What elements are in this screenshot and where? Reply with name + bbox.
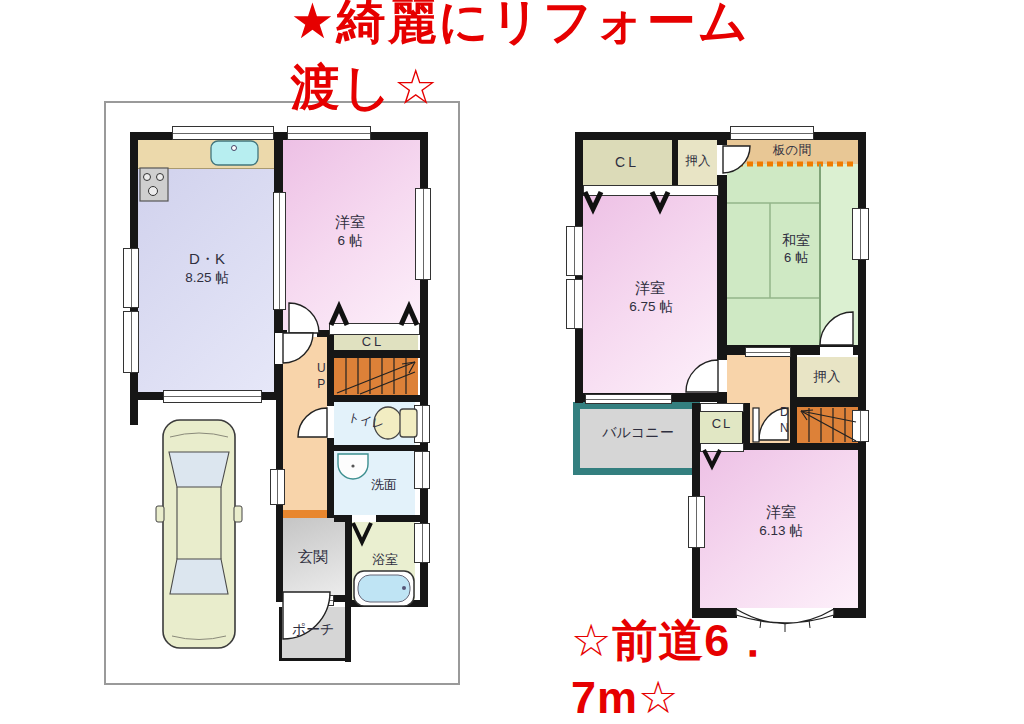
door-opening: [717, 360, 727, 392]
front-road-note: ☆前道6．7m☆: [571, 611, 873, 724]
window-symbol: [852, 410, 869, 442]
page-title: ★綺麗にリフォーム渡し☆: [291, 0, 780, 121]
room-label-closet-top: CL: [615, 155, 639, 170]
window-symbol: [270, 469, 285, 505]
window-symbol: [566, 226, 583, 276]
stairs-up-floor: [334, 357, 418, 395]
wall: [575, 132, 866, 140]
door-opening: [287, 330, 317, 337]
wall: [274, 140, 283, 194]
window-symbol: [123, 248, 139, 308]
window-symbol: [414, 523, 430, 563]
wall: [345, 600, 428, 607]
closet-front-bar: [700, 443, 744, 452]
window-symbol: [287, 126, 371, 140]
wall: [692, 403, 700, 449]
stairs-dn-floor: [797, 407, 858, 443]
door-opening: [717, 145, 727, 175]
window-symbol: [566, 279, 583, 329]
window-symbol: [123, 311, 139, 373]
room-label-bathroom: 浴室: [372, 553, 398, 567]
window-symbol: [415, 188, 431, 280]
room-size-western613: 6.13 帖: [759, 524, 803, 538]
window-symbol: [414, 405, 430, 443]
wall: [279, 607, 282, 661]
room-label-washroom: 洗面: [371, 478, 397, 492]
room-label-itanoma: 板の間: [773, 144, 811, 157]
room-label-western6: 洋室: [335, 214, 365, 230]
closet-front-bar: [583, 185, 719, 196]
room-size-western6: 6 帖: [338, 234, 363, 248]
stairs-up-label: UP: [315, 361, 328, 393]
window-symbol: [852, 208, 869, 260]
wall: [345, 607, 351, 662]
wall: [345, 518, 352, 607]
door-opening: [820, 347, 853, 355]
room-label-closet-small: CL: [712, 417, 733, 431]
room-label-western675: 洋室: [635, 280, 665, 296]
room-label-closet-1f: CL: [362, 335, 385, 349]
wall: [279, 658, 349, 661]
wall: [327, 395, 428, 402]
room-label-oshiire-top: 押入: [686, 155, 711, 168]
wall: [130, 392, 138, 425]
room-label-balcony: バルコニー: [602, 425, 673, 440]
door-opening: [275, 333, 283, 364]
wall: [672, 140, 678, 186]
wall: [327, 350, 428, 358]
window-symbol: [286, 595, 334, 606]
window-symbol: [688, 496, 705, 548]
window-symbol: [163, 390, 262, 403]
closet-front-bar: [700, 403, 744, 412]
room-label-dk: D・K: [189, 251, 225, 267]
window-symbol: [585, 394, 672, 404]
window-symbol: [414, 451, 430, 489]
door-opening: [352, 515, 376, 522]
window-symbol: [745, 347, 791, 357]
room-label-japanese6: 和室: [782, 233, 810, 248]
kitchen-counter: [138, 140, 275, 169]
wall: [742, 443, 866, 450]
wall: [334, 445, 420, 451]
room-label-western613: 洋室: [766, 504, 796, 520]
room-size-japanese6: 6 帖: [784, 251, 808, 265]
wall: [790, 397, 866, 407]
door-opening: [327, 406, 334, 438]
window-symbol: [730, 126, 814, 140]
stairs-down-label: DN: [778, 405, 791, 437]
room-label-entrance: 玄関: [298, 549, 328, 565]
floorplan-image: ★綺麗にリフォーム渡し☆: [0, 0, 1024, 724]
wall: [858, 132, 866, 618]
room-size-western675: 6.75 帖: [629, 300, 673, 314]
window-symbol: [273, 192, 286, 310]
entrance-threshold: [278, 510, 327, 518]
room-size-dk: 8.25 帖: [185, 271, 229, 285]
window-symbol: [172, 126, 274, 140]
room-label-oshiire-right: 押入: [814, 370, 841, 384]
room-label-porch: ポーチ: [292, 622, 335, 637]
